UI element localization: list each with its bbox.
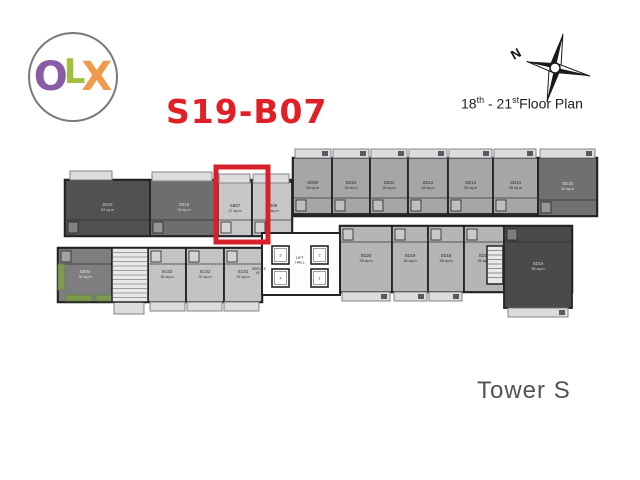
unit-bathroom — [431, 229, 441, 240]
ac-unit — [586, 151, 592, 156]
ac-unit — [322, 151, 328, 156]
unit-bathroom — [227, 251, 237, 262]
planter — [58, 264, 65, 290]
balcony — [253, 174, 289, 183]
balcony — [187, 302, 222, 311]
unit-bathroom — [467, 229, 477, 240]
ac-unit — [438, 151, 444, 156]
staircase — [487, 246, 503, 284]
unit-bathroom — [221, 222, 231, 233]
balcony — [152, 172, 212, 181]
unit-bathroom — [296, 200, 306, 211]
unit-bathroom — [395, 229, 405, 240]
planter — [96, 295, 112, 301]
unit-bathroom — [343, 229, 353, 240]
building-plan: S01654 sq.mS01834 sq.mSB0727 sq.mSB0827 … — [58, 149, 597, 317]
plan-label: LIFTHALL — [295, 256, 305, 265]
floorplan-listing-image: O L X S19-B07 18th - 21stFloor Plan Towe… — [0, 0, 640, 480]
unit-bathroom — [189, 251, 199, 262]
balcony — [70, 171, 112, 180]
ac-unit — [453, 294, 459, 299]
ac-unit — [360, 151, 366, 156]
compass-icon: N — [508, 27, 598, 110]
ac-unit — [418, 294, 424, 299]
ac-unit — [559, 310, 565, 315]
balcony — [150, 302, 185, 311]
compass-n-label: N — [508, 45, 524, 63]
unit-bathroom — [451, 200, 461, 211]
ac-unit — [527, 151, 533, 156]
ac-unit — [398, 151, 404, 156]
unit-bathroom — [373, 200, 383, 211]
balcony — [224, 302, 259, 311]
balcony — [114, 302, 144, 314]
unit-bathroom — [496, 200, 506, 211]
floorplan-canvas: N S01654 sq.mS01834 sq.mSB0727 sq.mSB082… — [0, 0, 640, 480]
ac-unit — [381, 294, 387, 299]
ac-unit — [483, 151, 489, 156]
unit-bathroom — [255, 222, 265, 233]
unit-bathroom — [153, 222, 163, 233]
unit-bathroom — [507, 229, 517, 240]
unit-bathroom — [61, 251, 71, 262]
unit-bathroom — [541, 202, 551, 213]
balcony — [219, 174, 250, 183]
unit-bathroom — [335, 200, 345, 211]
unit-bathroom — [151, 251, 161, 262]
unit-bathroom — [68, 222, 78, 233]
unit-bathroom — [411, 200, 421, 211]
planter — [66, 295, 92, 301]
